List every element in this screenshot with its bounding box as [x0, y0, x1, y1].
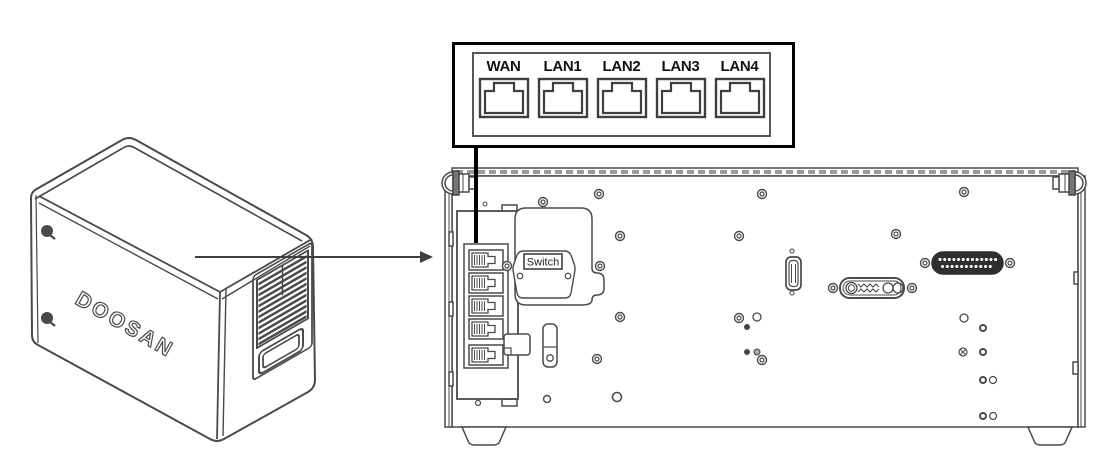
panel-feet [462, 427, 1072, 445]
port-group-lan4: LAN4 [712, 57, 767, 119]
rj45-port-icon [478, 77, 530, 119]
rj45-port-icon [655, 77, 707, 119]
ethernet-port-strip [457, 205, 518, 406]
callout-leader-line [474, 146, 478, 243]
pointer-arrow-line [195, 256, 421, 258]
port-label: LAN4 [721, 57, 759, 77]
arrow-right-icon [420, 251, 433, 263]
box-outline [31, 138, 315, 441]
rj45-side-icon [469, 273, 503, 293]
port-group-lan3: LAN3 [653, 57, 708, 119]
port-label: LAN3 [662, 57, 700, 77]
switch-label: Switch [527, 257, 559, 269]
controller-box-drawing: DOOSAN [10, 125, 350, 455]
db25-connector [921, 252, 1015, 274]
rj45-port-icon [537, 77, 589, 119]
rj45-side-icon [469, 296, 503, 316]
port-label: LAN2 [603, 57, 641, 77]
port-label: WAN [486, 57, 520, 77]
power-switch-plate: Switch [513, 208, 604, 305]
rj45-port-icon [596, 77, 648, 119]
port-callout-panel: WAN LAN1 LAN2 [472, 52, 771, 137]
rj45-side-icon [469, 345, 503, 365]
port-group-lan1: LAN1 [535, 57, 590, 119]
back-panel-drawing: Switch [440, 162, 1092, 452]
port-group-lan2: LAN2 [594, 57, 649, 119]
hardware-diagram: Switch [0, 0, 1114, 473]
rj45-port-icon [714, 77, 766, 119]
rj45-side-icon [469, 250, 503, 270]
rj45-side-icon [469, 319, 503, 339]
port-callout-box: WAN LAN1 LAN2 [452, 42, 795, 148]
port-group-wan: WAN [476, 57, 531, 119]
port-label: LAN1 [544, 57, 582, 77]
